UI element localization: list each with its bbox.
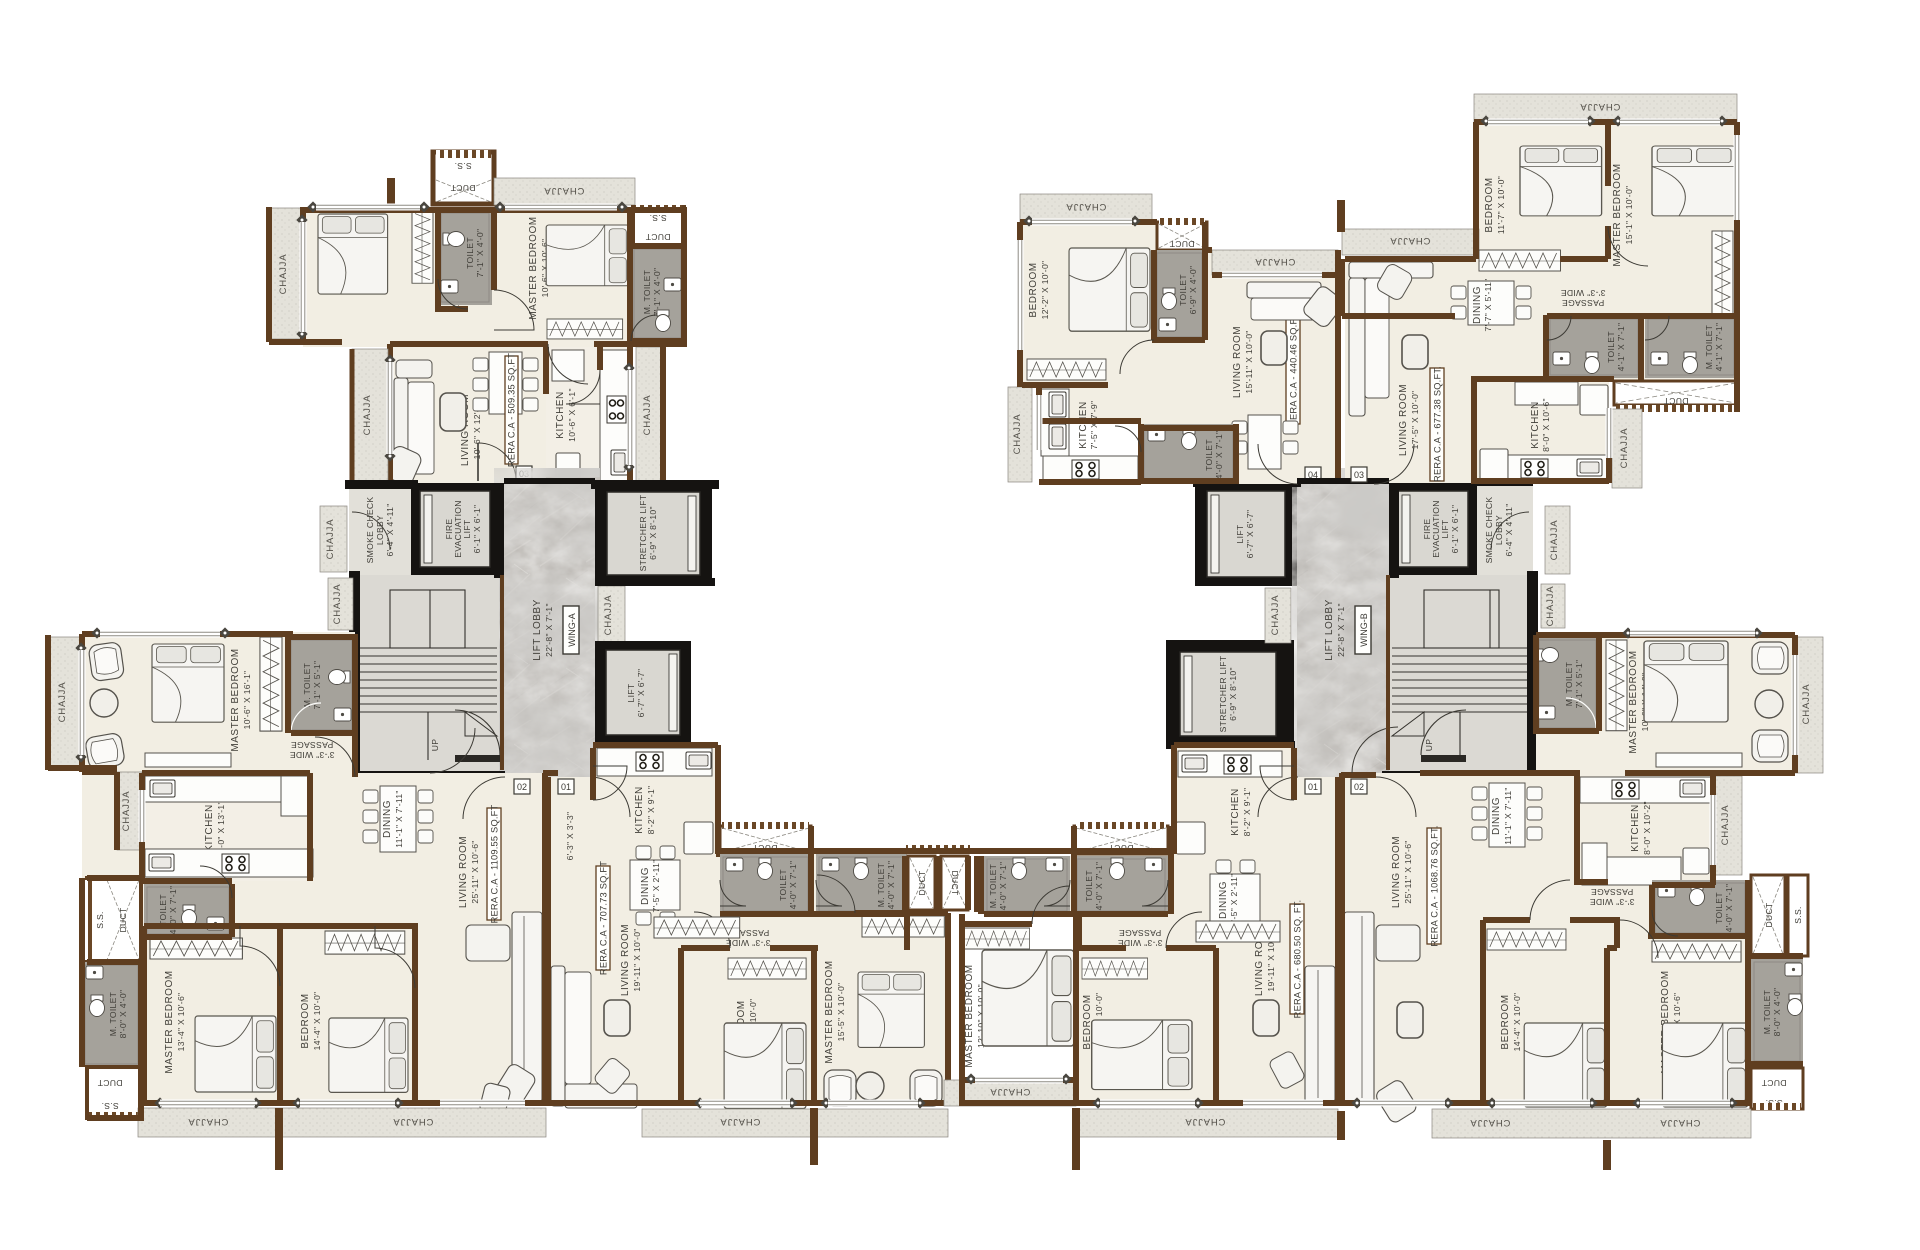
svg-text:6'-9" X 8'-10": 6'-9" X 8'-10" bbox=[1228, 667, 1238, 721]
svg-text:CHAJJA: CHAJJA bbox=[393, 1116, 434, 1127]
svg-text:LIVING ROOM: LIVING ROOM bbox=[1232, 326, 1243, 398]
svg-text:03: 03 bbox=[1354, 470, 1364, 480]
svg-text:7'-7" X 5'-11": 7'-7" X 5'-11" bbox=[1483, 278, 1493, 331]
svg-text:7'-1" X 4'-0": 7'-1" X 4'-0" bbox=[652, 268, 662, 317]
svg-text:KITCHEN: KITCHEN bbox=[634, 786, 645, 833]
svg-text:8'-0" X 10'-6": 8'-0" X 10'-6" bbox=[1541, 398, 1551, 452]
svg-text:DUCT: DUCT bbox=[118, 907, 128, 933]
svg-text:22'-8" X 7'-1": 22'-8" X 7'-1" bbox=[544, 603, 554, 657]
svg-text:M. TOILET: M. TOILET bbox=[988, 863, 998, 908]
svg-text:SMOKE CHECK: SMOKE CHECK bbox=[365, 497, 375, 564]
svg-text:MASTER BEDROOM: MASTER BEDROOM bbox=[964, 964, 975, 1067]
svg-text:PASSAGE: PASSAGE bbox=[291, 740, 334, 750]
svg-text:DUCT: DUCT bbox=[1764, 902, 1774, 928]
svg-text:BEDROOM: BEDROOM bbox=[300, 993, 311, 1048]
svg-text:4'-1" X 7'-1": 4'-1" X 7'-1" bbox=[1714, 323, 1724, 372]
svg-text:RERA C.A - 680.50 SQ. FT.: RERA C.A - 680.50 SQ. FT. bbox=[1293, 900, 1303, 1019]
svg-text:6'-1" X 6'-1": 6'-1" X 6'-1" bbox=[1450, 505, 1460, 554]
svg-text:CHAJJA: CHAJJA bbox=[325, 519, 336, 560]
svg-text:RERA C.A - 707.73 SQ.FT: RERA C.A - 707.73 SQ.FT bbox=[599, 861, 609, 975]
svg-text:DUCT: DUCT bbox=[1169, 239, 1195, 249]
svg-text:8'-0" X 10'-2": 8'-0" X 10'-2" bbox=[1642, 801, 1652, 855]
svg-text:PASSAGE: PASSAGE bbox=[1562, 298, 1605, 308]
svg-text:KITCHEN: KITCHEN bbox=[1630, 804, 1641, 851]
svg-text:CHAJJA: CHAJJA bbox=[642, 395, 653, 436]
svg-text:KITCHEN: KITCHEN bbox=[204, 804, 215, 851]
svg-text:DUCT: DUCT bbox=[1761, 1078, 1787, 1088]
svg-text:DUCT: DUCT bbox=[450, 183, 476, 193]
svg-text:WING-A: WING-A bbox=[567, 613, 577, 647]
svg-text:19'-11" X 10'-0": 19'-11" X 10'-0" bbox=[632, 928, 642, 991]
svg-text:MASTER BEDROOM: MASTER BEDROOM bbox=[164, 970, 175, 1073]
svg-text:CHAJJA: CHAJJA bbox=[1066, 201, 1107, 212]
svg-text:UP: UP bbox=[430, 739, 440, 752]
svg-text:11'-1" X 7'-11": 11'-1" X 7'-11" bbox=[1503, 787, 1513, 845]
svg-text:RERA C.A - 1109.55 SQ.FT: RERA C.A - 1109.55 SQ.FT bbox=[490, 804, 500, 923]
svg-text:8'-2" X 9'-1": 8'-2" X 9'-1" bbox=[1242, 788, 1252, 837]
svg-text:01: 01 bbox=[561, 782, 571, 792]
svg-text:CHAJJA: CHAJJA bbox=[720, 1116, 761, 1127]
svg-text:CHAJJA: CHAJJA bbox=[362, 395, 373, 436]
svg-text:CHAJJA: CHAJJA bbox=[1801, 684, 1812, 725]
svg-text:KITCHEN: KITCHEN bbox=[555, 391, 566, 438]
svg-text:15'-5" X 10'-0": 15'-5" X 10'-0" bbox=[836, 983, 846, 1042]
svg-text:DUCT: DUCT bbox=[97, 1078, 123, 1088]
svg-text:BEDROOM: BEDROOM bbox=[1500, 994, 1511, 1049]
svg-text:13'-4" X 10'-6": 13'-4" X 10'-6" bbox=[176, 993, 186, 1052]
svg-text:MASTER BEDROOM: MASTER BEDROOM bbox=[528, 216, 539, 319]
svg-text:6'-9" X 8'-10": 6'-9" X 8'-10" bbox=[648, 506, 658, 560]
svg-text:LIVING ROOM: LIVING ROOM bbox=[458, 836, 469, 908]
svg-text:PASSAGE: PASSAGE bbox=[1119, 928, 1162, 938]
svg-text:M. TOILET: M. TOILET bbox=[876, 862, 886, 907]
svg-text:01: 01 bbox=[1308, 782, 1318, 792]
svg-text:3'-3" WIDE: 3'-3" WIDE bbox=[1590, 897, 1635, 907]
svg-text:8'-0" X 4'-0": 8'-0" X 4'-0" bbox=[1772, 988, 1782, 1037]
svg-text:6'-7" X 6'-7": 6'-7" X 6'-7" bbox=[1245, 510, 1255, 559]
svg-text:4'-0" X 7'-1": 4'-0" X 7'-1" bbox=[886, 861, 896, 910]
svg-text:CHAJJA: CHAJJA bbox=[603, 595, 614, 636]
svg-text:02: 02 bbox=[1354, 782, 1364, 792]
svg-text:4'-0" X 7'-1": 4'-0" X 7'-1" bbox=[1214, 431, 1224, 480]
svg-text:14'-4" X 10'-0": 14'-4" X 10'-0" bbox=[1512, 993, 1522, 1052]
svg-text:DINING: DINING bbox=[382, 800, 393, 838]
svg-text:17'-5" X 10'-0": 17'-5" X 10'-0" bbox=[1410, 391, 1420, 450]
svg-text:CHAJJA: CHAJJA bbox=[57, 682, 68, 723]
svg-text:DINING: DINING bbox=[1491, 797, 1502, 835]
svg-text:DUCT: DUCT bbox=[950, 870, 960, 896]
svg-text:LIVING ROOM: LIVING ROOM bbox=[620, 924, 631, 996]
svg-text:RERA C.A - 509.35 SQ.FT: RERA C.A - 509.35 SQ.FT bbox=[507, 353, 517, 467]
svg-text:CHAJJA: CHAJJA bbox=[332, 584, 343, 625]
svg-text:3'-3" WIDE: 3'-3" WIDE bbox=[290, 750, 335, 760]
svg-text:M. TOILET: M. TOILET bbox=[1564, 661, 1574, 706]
svg-text:CHAJJA: CHAJJA bbox=[1720, 805, 1731, 846]
svg-text:M. TOILET: M. TOILET bbox=[1762, 989, 1772, 1034]
svg-text:12'-2" X 10'-0": 12'-2" X 10'-0" bbox=[1040, 261, 1050, 320]
svg-text:6'-4" X 4'-11": 6'-4" X 4'-11" bbox=[1504, 503, 1514, 556]
svg-text:SMOKE CHECK: SMOKE CHECK bbox=[1484, 497, 1494, 564]
svg-text:S.S.: S.S. bbox=[95, 911, 105, 928]
svg-text:MASTER BEDROOM: MASTER BEDROOM bbox=[1612, 163, 1623, 266]
svg-text:7'-1" X 5'-1": 7'-1" X 5'-1" bbox=[312, 661, 322, 710]
svg-text:S.S.: S.S. bbox=[1793, 906, 1803, 923]
svg-text:CHAJJA: CHAJJA bbox=[1545, 586, 1556, 627]
svg-text:S.S.: S.S. bbox=[649, 213, 666, 223]
svg-text:PASSAGE: PASSAGE bbox=[1591, 887, 1634, 897]
svg-text:CHAJJA: CHAJJA bbox=[1270, 595, 1281, 636]
svg-text:KITCHEN: KITCHEN bbox=[1078, 401, 1089, 448]
svg-text:LIVING ROOM: LIVING ROOM bbox=[1391, 836, 1402, 908]
svg-text:LIFT: LIFT bbox=[626, 683, 636, 702]
svg-text:7'-5" X 2'-11": 7'-5" X 2'-11" bbox=[651, 859, 661, 912]
svg-text:DUCT: DUCT bbox=[917, 870, 927, 896]
svg-text:DUCT: DUCT bbox=[645, 232, 671, 242]
svg-text:25'-11" X 10'-6": 25'-11" X 10'-6" bbox=[470, 840, 480, 903]
svg-text:11'-7" X 10'-0": 11'-7" X 10'-0" bbox=[1496, 176, 1506, 234]
svg-text:11'-1" X 7'-11": 11'-1" X 7'-11" bbox=[394, 790, 404, 848]
svg-text:6'-3" X 3'-3": 6'-3" X 3'-3" bbox=[565, 812, 575, 861]
svg-text:STRETCHER LIFT: STRETCHER LIFT bbox=[1218, 655, 1228, 732]
svg-text:TOILET: TOILET bbox=[1084, 870, 1094, 902]
svg-text:CHAJJA: CHAJJA bbox=[1255, 256, 1296, 267]
svg-text:CHAJJA: CHAJJA bbox=[188, 1116, 229, 1127]
svg-text:BEDROOM: BEDROOM bbox=[1484, 177, 1495, 232]
svg-text:LOBBY: LOBBY bbox=[1494, 515, 1504, 545]
svg-text:TOILET: TOILET bbox=[1606, 331, 1616, 363]
svg-text:BEDROOM: BEDROOM bbox=[1028, 262, 1039, 317]
svg-text:LIFT: LIFT bbox=[1440, 519, 1450, 538]
svg-text:CHAJJA: CHAJJA bbox=[1549, 520, 1560, 561]
svg-text:MASTER BEDROOM: MASTER BEDROOM bbox=[824, 960, 835, 1063]
svg-text:CHAJJA: CHAJJA bbox=[544, 185, 585, 196]
svg-text:DINING: DINING bbox=[1218, 881, 1229, 919]
svg-text:10'-6" X 6'-1": 10'-6" X 6'-1" bbox=[567, 388, 577, 442]
svg-text:6'-7" X 6'-7": 6'-7" X 6'-7" bbox=[636, 669, 646, 718]
svg-text:CHAJJA: CHAJJA bbox=[1012, 414, 1023, 455]
svg-text:M. TOILET: M. TOILET bbox=[302, 662, 312, 707]
svg-text:LIFT: LIFT bbox=[462, 519, 472, 538]
svg-text:TOILET: TOILET bbox=[158, 894, 168, 926]
svg-text:LIFT LOBBY: LIFT LOBBY bbox=[532, 599, 543, 661]
svg-text:6'-9" X 4'-0": 6'-9" X 4'-0" bbox=[1188, 266, 1198, 315]
svg-text:RERA C.A - 1068.76 SQ.FT.: RERA C.A - 1068.76 SQ.FT. bbox=[1430, 825, 1440, 946]
svg-text:22'-8" X 7'-1": 22'-8" X 7'-1" bbox=[1336, 603, 1346, 657]
svg-text:TOILET: TOILET bbox=[465, 237, 475, 269]
svg-text:03: 03 bbox=[519, 469, 529, 479]
svg-text:UP: UP bbox=[1424, 739, 1434, 752]
svg-text:4'-1" X 7'-1": 4'-1" X 7'-1" bbox=[1616, 323, 1626, 372]
svg-text:10'-6" X 16'-1": 10'-6" X 16'-1" bbox=[242, 671, 252, 730]
svg-text:4'-0" X 7'-1": 4'-0" X 7'-1" bbox=[998, 862, 1008, 911]
svg-text:S.S.: S.S. bbox=[454, 161, 471, 171]
svg-text:DUCT: DUCT bbox=[1663, 396, 1689, 406]
svg-text:RERA C.A - 440.46 SQ.FT.: RERA C.A - 440.46 SQ.FT. bbox=[1289, 311, 1299, 427]
svg-text:15'-11" X 10'-0": 15'-11" X 10'-0" bbox=[1244, 330, 1254, 393]
svg-text:25'-11" X 10'-6": 25'-11" X 10'-6" bbox=[1403, 840, 1413, 903]
svg-text:M. TOILET: M. TOILET bbox=[108, 991, 118, 1036]
svg-text:CHAJJA: CHAJJA bbox=[1619, 428, 1630, 469]
svg-text:8'-0" X 13'-1": 8'-0" X 13'-1" bbox=[216, 801, 226, 855]
svg-text:STRETCHER LIFT: STRETCHER LIFT bbox=[638, 494, 648, 571]
svg-text:7'-5" X 7'-9": 7'-5" X 7'-9" bbox=[1089, 401, 1099, 450]
svg-text:CHAJJA: CHAJJA bbox=[990, 1086, 1031, 1097]
svg-text:MASTER BEDROOM: MASTER BEDROOM bbox=[1628, 650, 1639, 753]
svg-text:8'-0" X 4'-0": 8'-0" X 4'-0" bbox=[118, 990, 128, 1039]
svg-text:CHAJJA: CHAJJA bbox=[1470, 1117, 1511, 1128]
svg-text:TOILET: TOILET bbox=[778, 869, 788, 901]
svg-text:M. TOILET: M. TOILET bbox=[1704, 324, 1714, 369]
svg-text:8'-2" X 9'-1": 8'-2" X 9'-1" bbox=[646, 786, 656, 835]
svg-text:15'-1" X 10'-0": 15'-1" X 10'-0" bbox=[1624, 186, 1634, 245]
svg-text:7'-5" X 2'-11": 7'-5" X 2'-11" bbox=[1229, 873, 1239, 926]
svg-text:DINING: DINING bbox=[1472, 286, 1483, 324]
svg-text:WING-B: WING-B bbox=[1359, 613, 1369, 647]
svg-text:CHAJJA: CHAJJA bbox=[1580, 101, 1621, 112]
svg-text:LOBBY: LOBBY bbox=[375, 515, 385, 545]
svg-text:KITCHEN: KITCHEN bbox=[1230, 788, 1241, 835]
svg-text:TOILET: TOILET bbox=[1204, 439, 1214, 471]
svg-text:TOILET: TOILET bbox=[1178, 274, 1188, 306]
svg-text:TOILET: TOILET bbox=[1714, 892, 1724, 924]
svg-text:S.S.: S.S. bbox=[101, 1101, 118, 1111]
svg-text:LIVING ROOM: LIVING ROOM bbox=[1398, 384, 1409, 456]
svg-text:CHAJJA: CHAJJA bbox=[121, 791, 132, 832]
svg-text:RERA C.A - 677.38 SQ.FT.: RERA C.A - 677.38 SQ.FT. bbox=[1433, 366, 1443, 482]
svg-text:02: 02 bbox=[517, 782, 527, 792]
svg-text:KITCHEN: KITCHEN bbox=[1530, 401, 1541, 448]
svg-text:4'-0" X 7'-1": 4'-0" X 7'-1" bbox=[788, 861, 798, 910]
svg-text:LIFT LOBBY: LIFT LOBBY bbox=[1324, 599, 1335, 661]
svg-text:CHAJJA: CHAJJA bbox=[1660, 1117, 1701, 1128]
svg-text:3'-3" WIDE: 3'-3" WIDE bbox=[1561, 288, 1606, 298]
svg-text:3'-3" WIDE: 3'-3" WIDE bbox=[726, 938, 771, 948]
svg-text:7'-1" X 4'-0": 7'-1" X 4'-0" bbox=[475, 229, 485, 278]
svg-text:M. TOILET: M. TOILET bbox=[642, 269, 652, 314]
svg-text:4'-0" X 7'-1": 4'-0" X 7'-1" bbox=[1724, 884, 1734, 933]
svg-text:LIFT: LIFT bbox=[1235, 524, 1245, 543]
svg-text:CHAJJA: CHAJJA bbox=[1390, 235, 1431, 246]
svg-text:14'-4" X 10'-0": 14'-4" X 10'-0" bbox=[312, 992, 322, 1051]
svg-text:MASTER BEDROOM: MASTER BEDROOM bbox=[230, 648, 241, 751]
svg-text:CHAJJA: CHAJJA bbox=[278, 254, 289, 295]
svg-text:6'-1" X 6'-1": 6'-1" X 6'-1" bbox=[472, 505, 482, 554]
svg-text:DINING: DINING bbox=[640, 867, 651, 905]
svg-text:4'-0" X 7'-1": 4'-0" X 7'-1" bbox=[1094, 862, 1104, 911]
svg-text:CHAJJA: CHAJJA bbox=[1185, 1116, 1226, 1127]
